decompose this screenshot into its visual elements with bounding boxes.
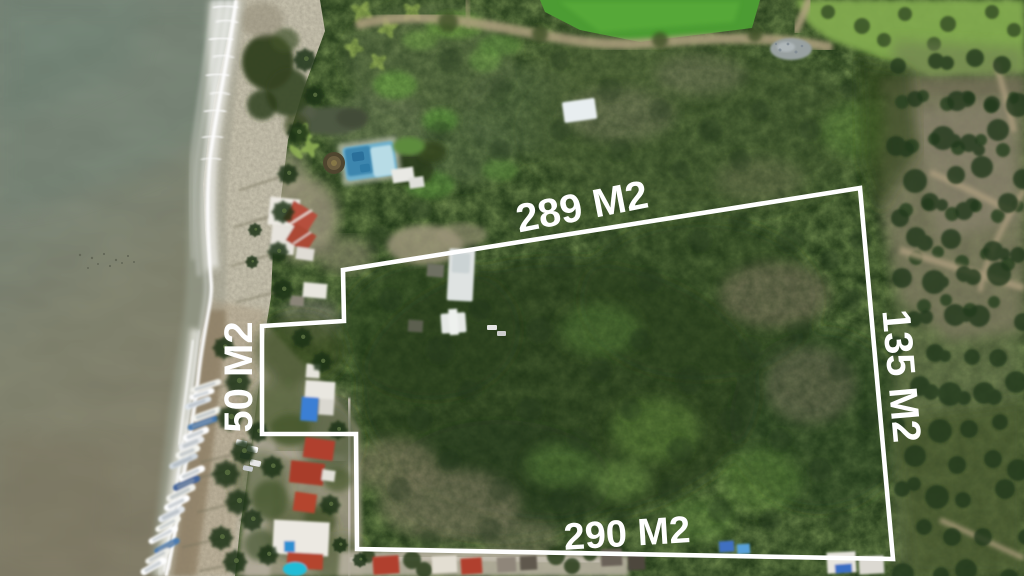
svg-text:50 M2: 50 M2	[217, 321, 261, 432]
svg-text:290 M2: 290 M2	[562, 509, 691, 559]
